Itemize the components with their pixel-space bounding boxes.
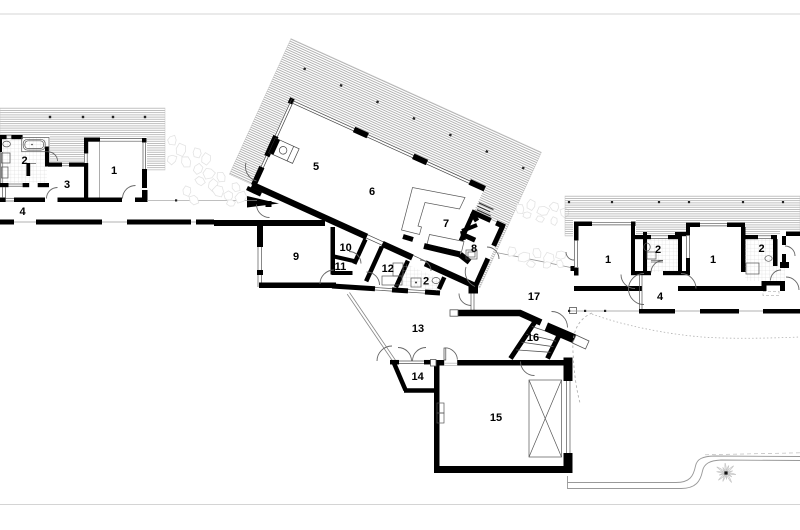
svg-text:2: 2 — [758, 243, 764, 255]
svg-text:2: 2 — [21, 155, 27, 167]
svg-text:10: 10 — [339, 242, 351, 254]
svg-text:16: 16 — [527, 332, 539, 344]
svg-text:13: 13 — [412, 323, 424, 335]
svg-text:2: 2 — [655, 244, 661, 256]
svg-text:15: 15 — [490, 412, 502, 424]
svg-text:11: 11 — [335, 261, 347, 273]
svg-text:6: 6 — [369, 186, 375, 198]
svg-text:1: 1 — [710, 254, 716, 266]
svg-text:17: 17 — [528, 291, 540, 303]
svg-text:8: 8 — [471, 243, 477, 255]
svg-text:14: 14 — [411, 371, 424, 383]
svg-text:12: 12 — [382, 263, 394, 275]
svg-text:1: 1 — [605, 254, 611, 266]
svg-text:2: 2 — [423, 276, 429, 288]
svg-text:5: 5 — [313, 161, 319, 173]
svg-text:4: 4 — [20, 206, 27, 218]
svg-text:9: 9 — [293, 251, 299, 263]
svg-text:1: 1 — [111, 165, 117, 177]
svg-text:7: 7 — [443, 218, 449, 230]
svg-text:4: 4 — [657, 291, 664, 303]
svg-text:3: 3 — [64, 179, 70, 191]
